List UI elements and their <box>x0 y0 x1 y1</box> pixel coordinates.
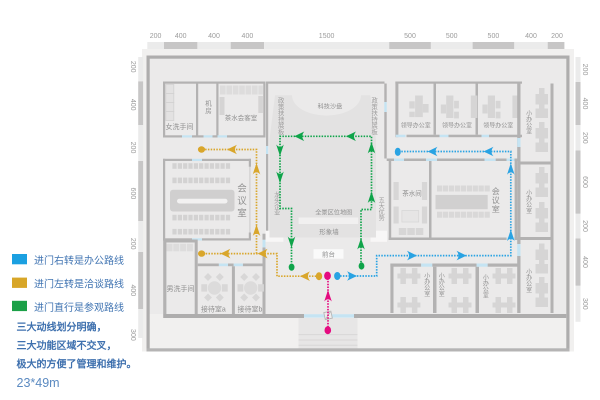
svg-text:400: 400 <box>242 33 254 40</box>
svg-text:小办公室: 小办公室 <box>437 272 444 297</box>
svg-text:300: 300 <box>581 298 588 310</box>
svg-text:400: 400 <box>581 98 588 110</box>
svg-text:200: 200 <box>129 238 136 250</box>
svg-text:600: 600 <box>129 188 136 200</box>
svg-text:200: 200 <box>581 132 588 144</box>
svg-text:500: 500 <box>488 33 500 40</box>
svg-text:1500: 1500 <box>319 33 335 40</box>
svg-text:200: 200 <box>150 33 162 40</box>
svg-text:接待室a: 接待室a <box>201 305 226 314</box>
svg-text:400: 400 <box>129 284 136 296</box>
svg-text:科技沙盘: 科技沙盘 <box>318 103 343 111</box>
svg-text:领导办公室: 领导办公室 <box>483 122 513 130</box>
svg-text:400: 400 <box>175 33 187 40</box>
svg-text:600: 600 <box>581 176 588 188</box>
svg-text:男洗手间: 男洗手间 <box>167 284 195 293</box>
svg-text:400: 400 <box>208 33 220 40</box>
svg-text:小办公室: 小办公室 <box>525 268 532 293</box>
svg-text:政策扶持展板: 政策扶持展板 <box>277 96 284 136</box>
svg-text:小办公室: 小办公室 <box>423 272 430 297</box>
svg-text:龙头企业: 龙头企业 <box>273 191 280 216</box>
svg-text:500: 500 <box>404 33 416 40</box>
svg-text:茶水间: 茶水间 <box>402 189 422 198</box>
svg-text:五大优势: 五大优势 <box>377 197 384 223</box>
svg-text:三大动线划分明确，: 三大动线划分明确， <box>17 321 107 334</box>
svg-text:进门直行是参观路线: 进门直行是参观路线 <box>34 301 124 314</box>
svg-text:200: 200 <box>129 142 136 154</box>
svg-text:形象墙: 形象墙 <box>319 227 339 236</box>
svg-text:前台: 前台 <box>322 250 335 259</box>
svg-text:接待室b: 接待室b <box>238 305 263 314</box>
svg-text:200: 200 <box>551 33 563 40</box>
svg-text:政策扶持展板: 政策扶持展板 <box>370 96 377 136</box>
svg-text:小办公室: 小办公室 <box>525 189 532 214</box>
svg-text:进门左转是洽谈路线: 进门左转是洽谈路线 <box>34 278 124 291</box>
svg-text:会议室: 会议室 <box>235 182 247 220</box>
svg-text:全景区位地图: 全景区位地图 <box>315 209 352 217</box>
svg-text:200: 200 <box>129 61 136 73</box>
svg-text:三大功能区域不交叉，: 三大功能区域不交叉， <box>17 339 117 352</box>
svg-text:400: 400 <box>581 256 588 268</box>
svg-text:小办公室: 小办公室 <box>481 273 488 298</box>
svg-text:会议室: 会议室 <box>491 186 500 214</box>
svg-text:极大的方便了管理和维护。: 极大的方便了管理和维护。 <box>17 358 137 371</box>
svg-text:300: 300 <box>129 329 136 341</box>
svg-text:茶水会客室: 茶水会客室 <box>225 113 258 122</box>
svg-text:200: 200 <box>581 64 588 76</box>
svg-text:进门右转是办公路线: 进门右转是办公路线 <box>34 254 124 267</box>
svg-text:领导办公室: 领导办公室 <box>401 122 431 130</box>
svg-text:400: 400 <box>129 99 136 111</box>
svg-text:女洗手间: 女洗手间 <box>166 122 194 131</box>
svg-text:领导办公室: 领导办公室 <box>442 122 472 130</box>
svg-text:200: 200 <box>581 220 588 232</box>
svg-text:23*49m: 23*49m <box>17 376 60 390</box>
svg-text:500: 500 <box>446 33 458 40</box>
svg-text:小办公室: 小办公室 <box>525 109 532 134</box>
svg-text:400: 400 <box>525 33 537 40</box>
